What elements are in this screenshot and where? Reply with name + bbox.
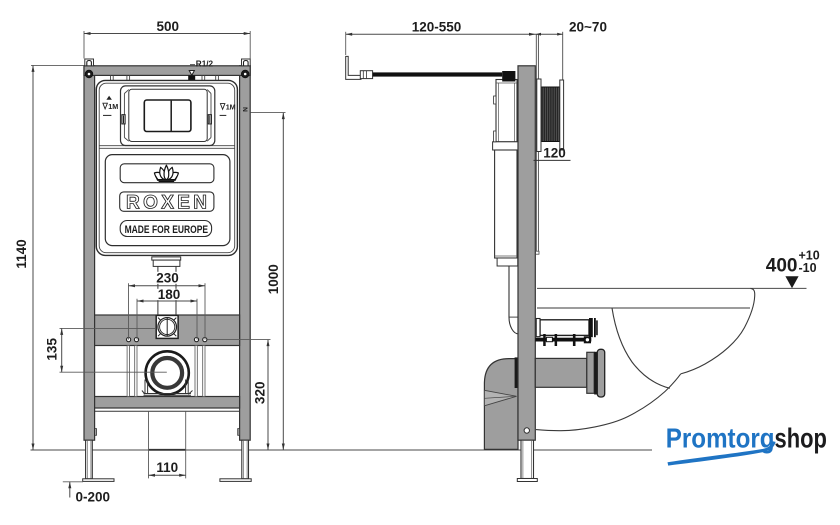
svg-text:400: 400 (766, 255, 798, 276)
svg-text:120-550: 120-550 (412, 19, 462, 34)
svg-text:shop: shop (775, 422, 827, 453)
svg-text:120: 120 (543, 146, 566, 161)
svg-text:180: 180 (158, 287, 181, 302)
svg-text:135: 135 (45, 338, 60, 361)
svg-text:MADE FOR EUROPE: MADE FOR EUROPE (125, 224, 209, 236)
svg-text:1140: 1140 (14, 239, 29, 268)
svg-text:110: 110 (156, 460, 178, 475)
svg-text:20~70: 20~70 (569, 19, 607, 34)
svg-text:1M: 1M (108, 102, 118, 111)
svg-text:0-200: 0-200 (76, 489, 111, 504)
svg-text:-10: -10 (799, 261, 817, 275)
svg-text:Promtorg: Promtorg (666, 422, 775, 453)
svg-text:500: 500 (157, 19, 180, 34)
svg-text:ROXEN: ROXEN (126, 193, 207, 214)
svg-text:N: N (243, 107, 250, 112)
svg-text:320: 320 (252, 382, 267, 405)
svg-text:1M: 1M (226, 102, 236, 111)
svg-text:R1/2: R1/2 (196, 60, 214, 69)
svg-text:230: 230 (156, 270, 179, 285)
svg-text:1000: 1000 (266, 264, 281, 294)
